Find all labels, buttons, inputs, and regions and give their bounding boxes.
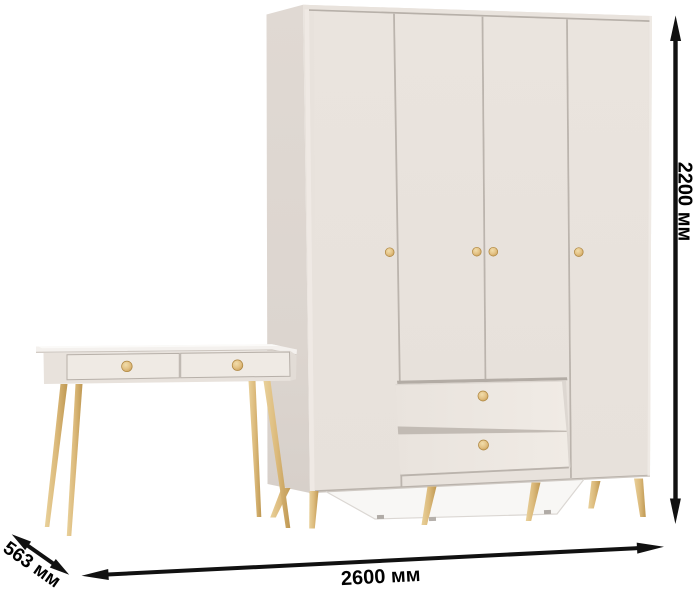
svg-text:2600 мм: 2600 мм: [340, 564, 421, 590]
svg-text:2200 мм: 2200 мм: [674, 162, 696, 242]
